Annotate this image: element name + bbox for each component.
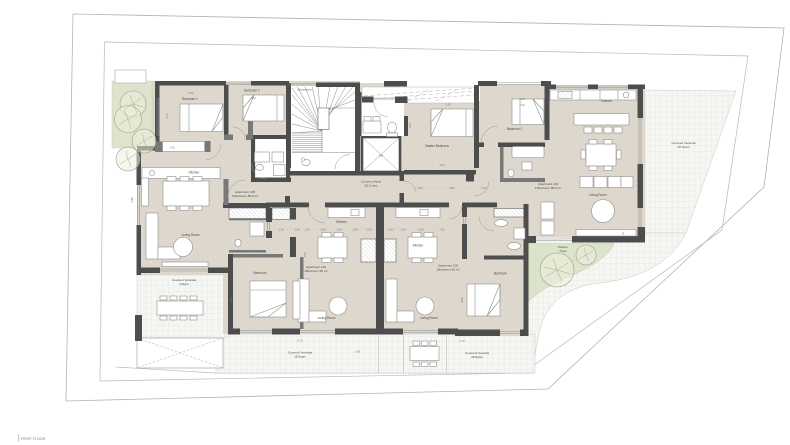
svg-text:0.63: 0.63 — [388, 228, 394, 232]
svg-text:1.90: 1.90 — [294, 228, 300, 232]
svg-text:18.5sqm: 18.5sqm — [471, 355, 483, 359]
svg-text:3.00: 3.00 — [418, 228, 424, 232]
svg-text:3.00: 3.00 — [188, 91, 194, 95]
svg-text:Kitchen: Kitchen — [336, 220, 347, 224]
svg-text:25.9sqm: 25.9sqm — [678, 145, 690, 149]
svg-text:3.00: 3.00 — [519, 97, 525, 101]
svg-text:4.02: 4.02 — [439, 163, 445, 167]
svg-text:18.5sqm: 18.5sqm — [294, 355, 306, 359]
svg-text:Kitchen: Kitchen — [413, 244, 424, 248]
svg-text:6.70: 6.70 — [459, 339, 465, 343]
svg-text:N: N — [622, 232, 624, 236]
svg-text:1Bedroom 50 m²: 1Bedroom 50 m² — [436, 268, 459, 272]
svg-text:2.08: 2.08 — [355, 350, 361, 354]
svg-text:Bedroom: Bedroom — [494, 272, 507, 276]
svg-text:3.80: 3.80 — [449, 186, 455, 190]
svg-text:Living Room: Living Room — [420, 316, 438, 320]
svg-text:7sqm: 7sqm — [559, 249, 567, 253]
svg-text:1.30: 1.30 — [439, 228, 445, 232]
svg-text:2.53: 2.53 — [366, 228, 372, 232]
svg-text:1.50: 1.50 — [352, 228, 358, 232]
svg-text:1.00: 1.00 — [417, 186, 423, 190]
svg-text:3.00: 3.00 — [229, 297, 233, 303]
svg-text:Living Room: Living Room — [182, 233, 200, 237]
svg-text:2.10: 2.10 — [165, 113, 169, 119]
svg-text:1.35: 1.35 — [481, 186, 487, 190]
svg-text:5.96: 5.96 — [130, 197, 134, 203]
svg-text:Bedroom 2: Bedroom 2 — [507, 127, 523, 131]
svg-text:1.25: 1.25 — [278, 228, 284, 232]
svg-text:13sqm: 13sqm — [179, 282, 189, 286]
svg-text:1Bedroom 50 m²: 1Bedroom 50 m² — [304, 269, 327, 273]
svg-text:Kitchen: Kitchen — [601, 99, 612, 103]
svg-text:3 Bedroom 85.5 m²: 3 Bedroom 85.5 m² — [232, 194, 258, 198]
svg-text:3.08: 3.08 — [460, 297, 464, 303]
svg-text:26.3 sqm: 26.3 sqm — [365, 184, 378, 188]
svg-text:3.00: 3.00 — [320, 228, 326, 232]
svg-text:1.20: 1.20 — [445, 103, 451, 107]
svg-text:Master Bedroom: Master Bedroom — [425, 144, 449, 148]
svg-text:Storeroom: Storeroom — [297, 88, 312, 92]
svg-text:Bedroom 2: Bedroom 2 — [244, 89, 260, 93]
svg-text:3 Bedroom 88.5 m²: 3 Bedroom 88.5 m² — [535, 186, 561, 190]
svg-text:1.40: 1.40 — [169, 146, 175, 150]
svg-text:1.00: 1.00 — [303, 252, 307, 258]
svg-text:2.80: 2.80 — [250, 96, 256, 100]
svg-text:FIRST FLOOR: FIRST FLOOR — [21, 437, 46, 441]
svg-text:Bedroom 1: Bedroom 1 — [182, 97, 198, 101]
svg-text:1.00: 1.00 — [336, 228, 342, 232]
svg-text:2.00: 2.00 — [519, 103, 525, 107]
svg-text:3.06: 3.06 — [408, 123, 412, 129]
svg-text:1.50: 1.50 — [304, 228, 310, 232]
svg-text:Living Room: Living Room — [318, 316, 336, 320]
svg-text:Kitchen: Kitchen — [189, 171, 200, 175]
svg-text:1.00: 1.00 — [400, 228, 406, 232]
svg-text:Bedroom: Bedroom — [254, 271, 267, 275]
svg-text:Lift: Lift — [379, 154, 383, 158]
svg-text:6.70: 6.70 — [297, 339, 303, 343]
svg-text:Living Room: Living Room — [589, 193, 607, 197]
